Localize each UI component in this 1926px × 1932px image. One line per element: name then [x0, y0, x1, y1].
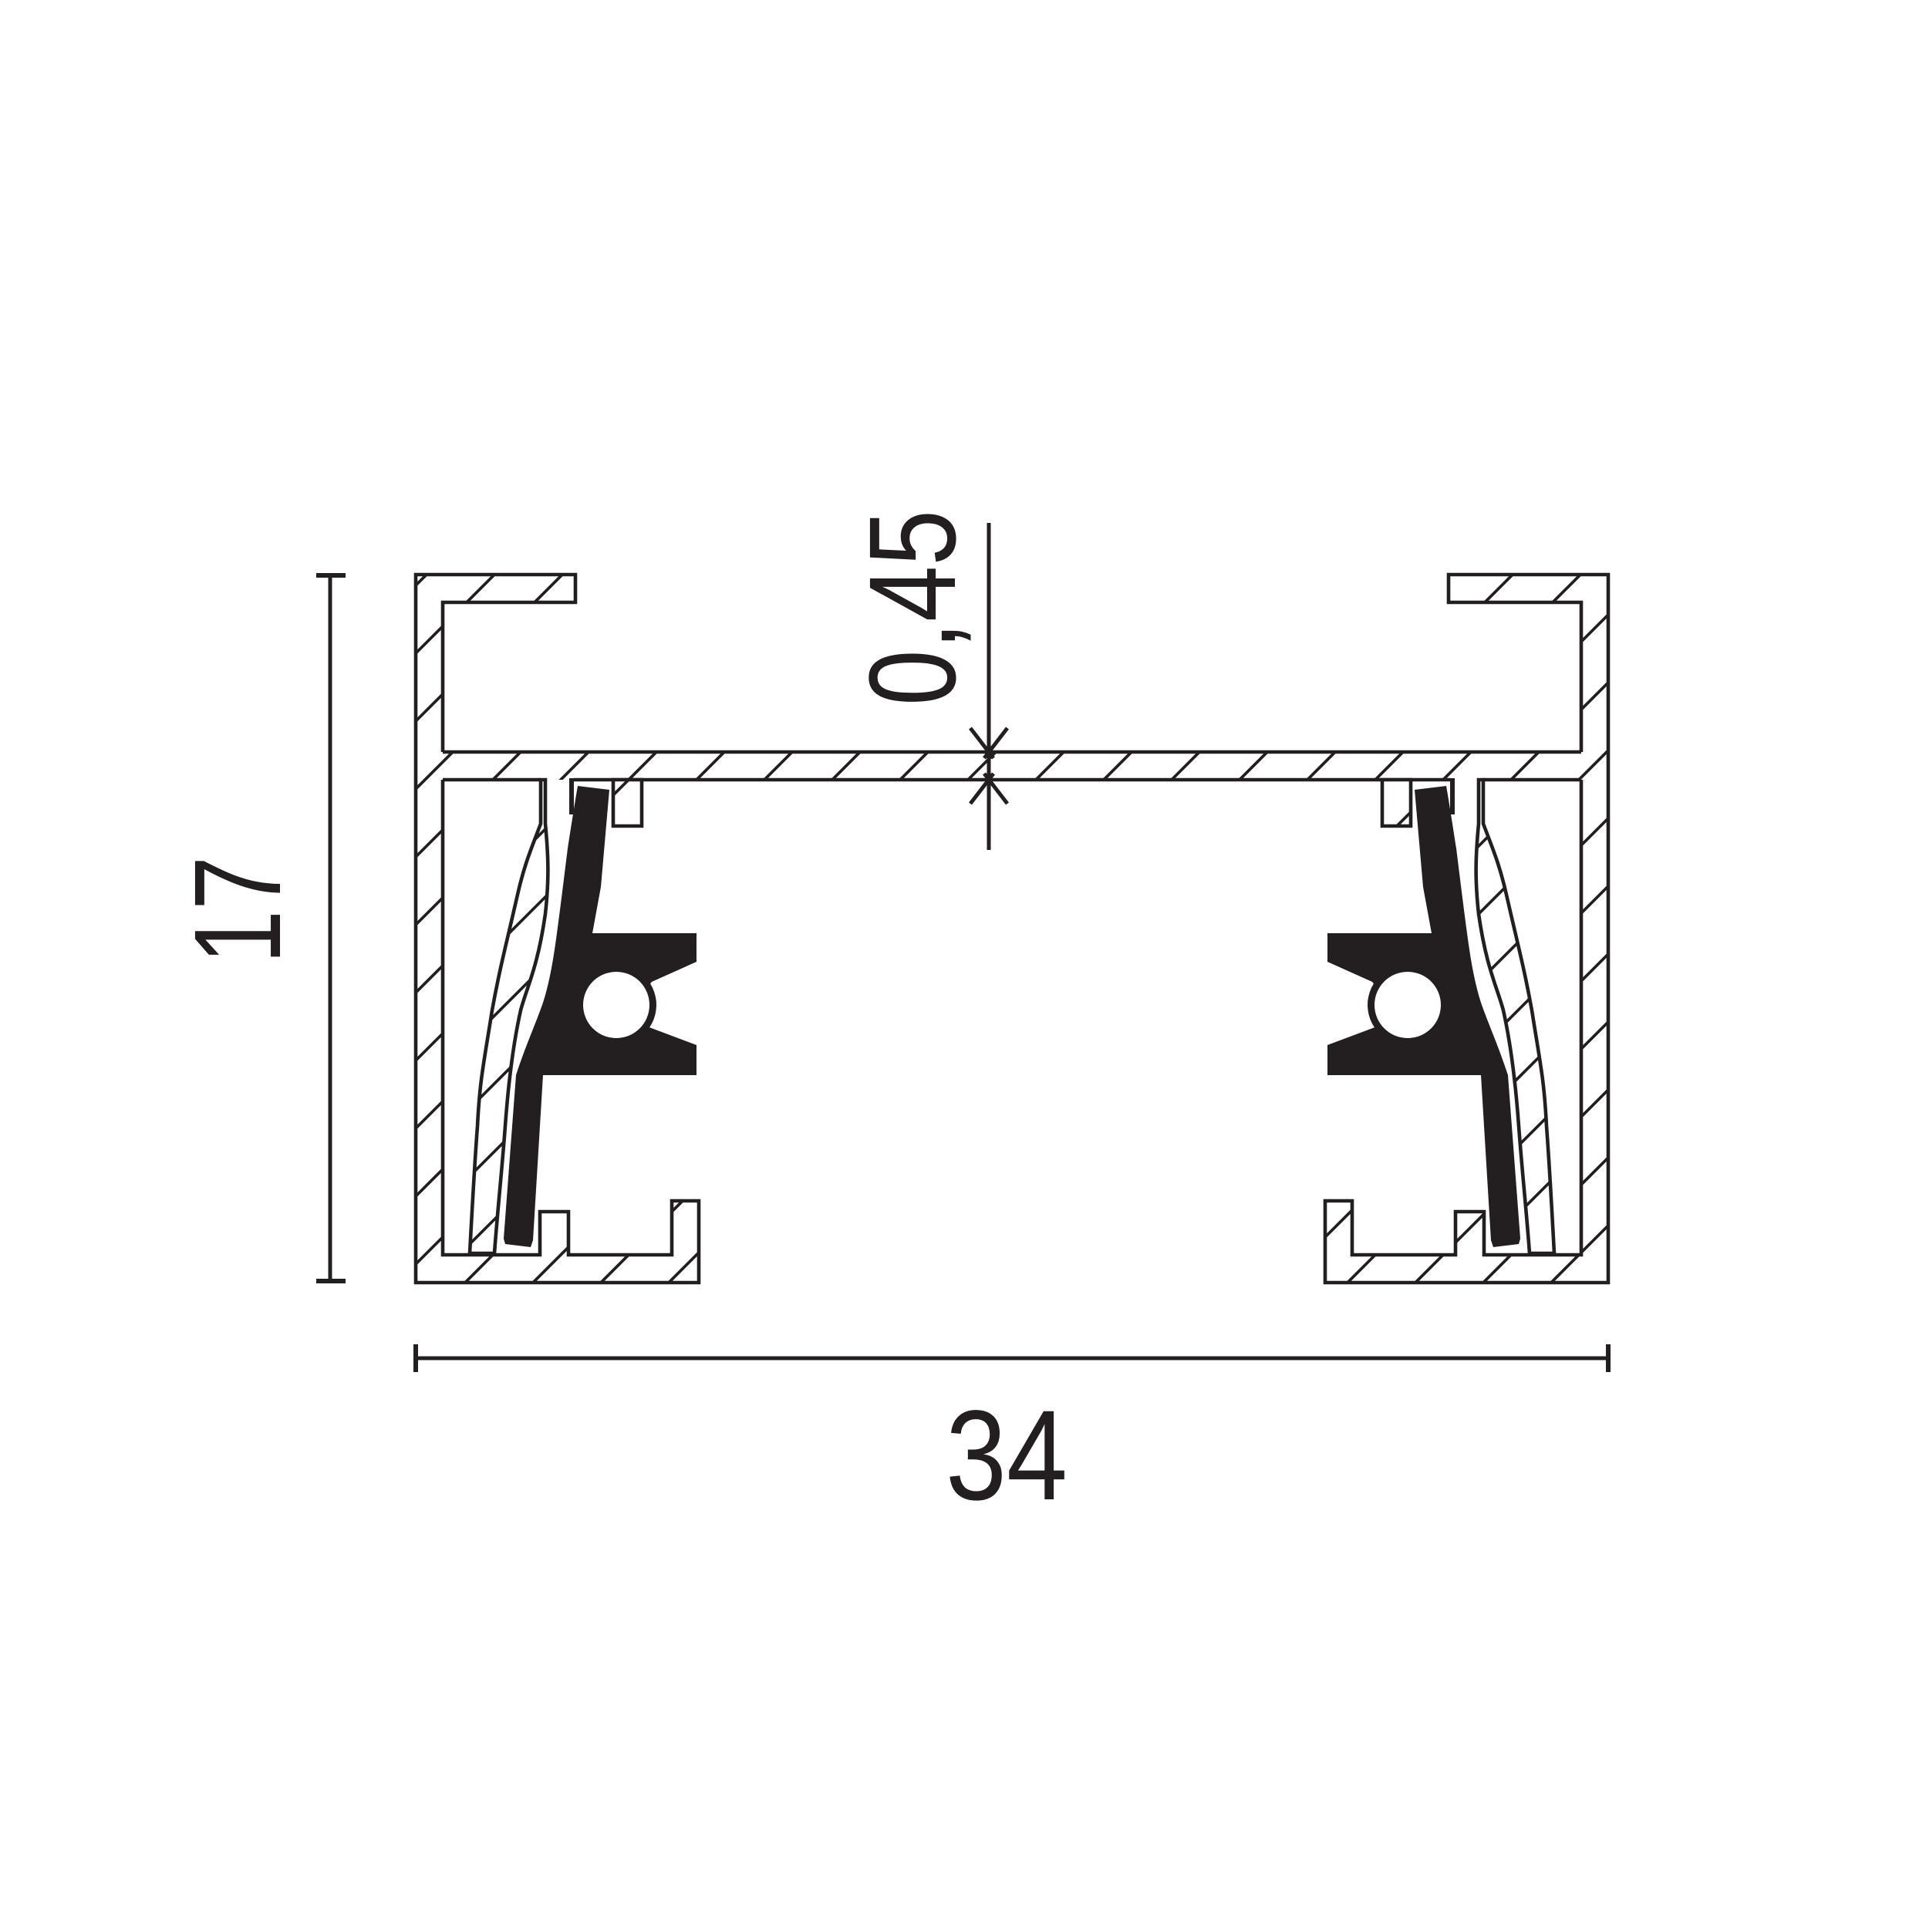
svg-text:34: 34	[946, 1384, 1068, 1527]
svg-text:0,45: 0,45	[843, 510, 981, 706]
svg-text:17: 17	[168, 856, 306, 964]
